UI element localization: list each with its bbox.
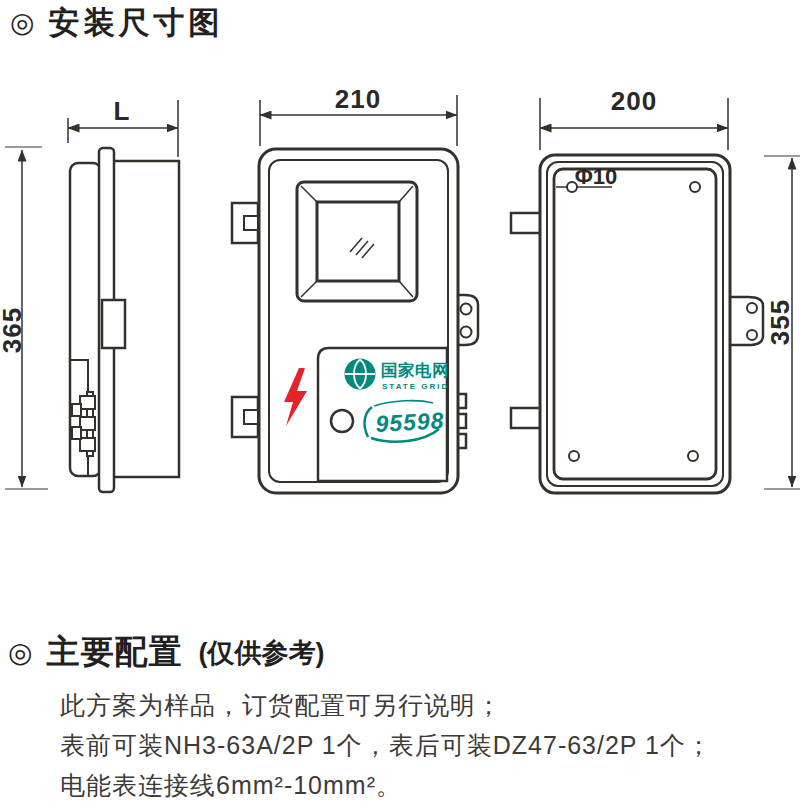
screw-hole xyxy=(461,327,472,338)
side-height-label: 365 xyxy=(0,307,27,353)
back-width-dimension: 200 xyxy=(540,86,728,150)
page-title: ◎ 安装尺寸图 xyxy=(10,2,223,44)
back-height-dimension: 355 xyxy=(764,156,800,489)
hinge-tab-bottom xyxy=(232,397,258,437)
state-grid-name-en: STATE GRID xyxy=(382,382,449,391)
front-width-label: 210 xyxy=(335,85,381,114)
screw-hole xyxy=(747,303,757,313)
bullseye-icon: ◎ xyxy=(8,639,32,667)
config-line: 此方案为样品，订货配置可另行说明； xyxy=(60,685,780,725)
page-title-text: 安装尺寸图 xyxy=(48,2,223,44)
side-view-drawing: L 365 xyxy=(0,96,179,492)
hinge-tab-top xyxy=(232,203,258,243)
section-note: (仅供参考) xyxy=(198,635,324,671)
back-width-label: 200 xyxy=(611,86,657,116)
state-grid-logo: 国家电网 STATE GRID xyxy=(345,359,450,392)
bullseye-icon: ◎ xyxy=(10,9,34,37)
screw-hole xyxy=(747,330,757,340)
mounting-hole xyxy=(569,451,579,461)
front-width-dimension: 210 xyxy=(260,85,457,146)
back-height-label: 355 xyxy=(765,299,795,345)
side-height-dimension: 365 xyxy=(0,147,48,489)
back-box-outer xyxy=(540,155,730,493)
side-width-dimension: L xyxy=(68,96,178,157)
side-latch xyxy=(102,300,125,348)
section-main-config: ◎ 主要配置 (仅供参考) xyxy=(8,630,324,675)
lock-hole xyxy=(331,410,353,432)
config-text: 此方案为样品，订货配置可另行说明； 表前可装NH3-63A/2P 1个，表后可装… xyxy=(60,685,780,805)
side-width-label: L xyxy=(114,96,131,126)
config-line: 电能表连接线6mm²-10mm²。 xyxy=(60,765,780,805)
mounting-hole xyxy=(688,451,698,461)
config-line: 表前可装NH3-63A/2P 1个，表后可装DZ47-63/2P 1个； xyxy=(60,725,780,765)
back-tab-bottom xyxy=(511,408,541,428)
front-view-drawing: 210 xyxy=(232,85,478,493)
section-title: 主要配置 xyxy=(46,630,182,675)
mounting-hole xyxy=(690,182,700,192)
dimension-diagram: L 365 210 xyxy=(0,85,800,515)
screw-hole xyxy=(461,304,472,315)
meter-window xyxy=(297,182,417,301)
back-view-drawing: 200 355 Φ10 xyxy=(511,86,800,493)
back-latch-plate xyxy=(727,297,763,345)
state-grid-name: 国家电网 xyxy=(381,361,449,379)
hole-diameter-label: Φ10 xyxy=(575,164,618,189)
back-tab-top xyxy=(511,213,541,233)
